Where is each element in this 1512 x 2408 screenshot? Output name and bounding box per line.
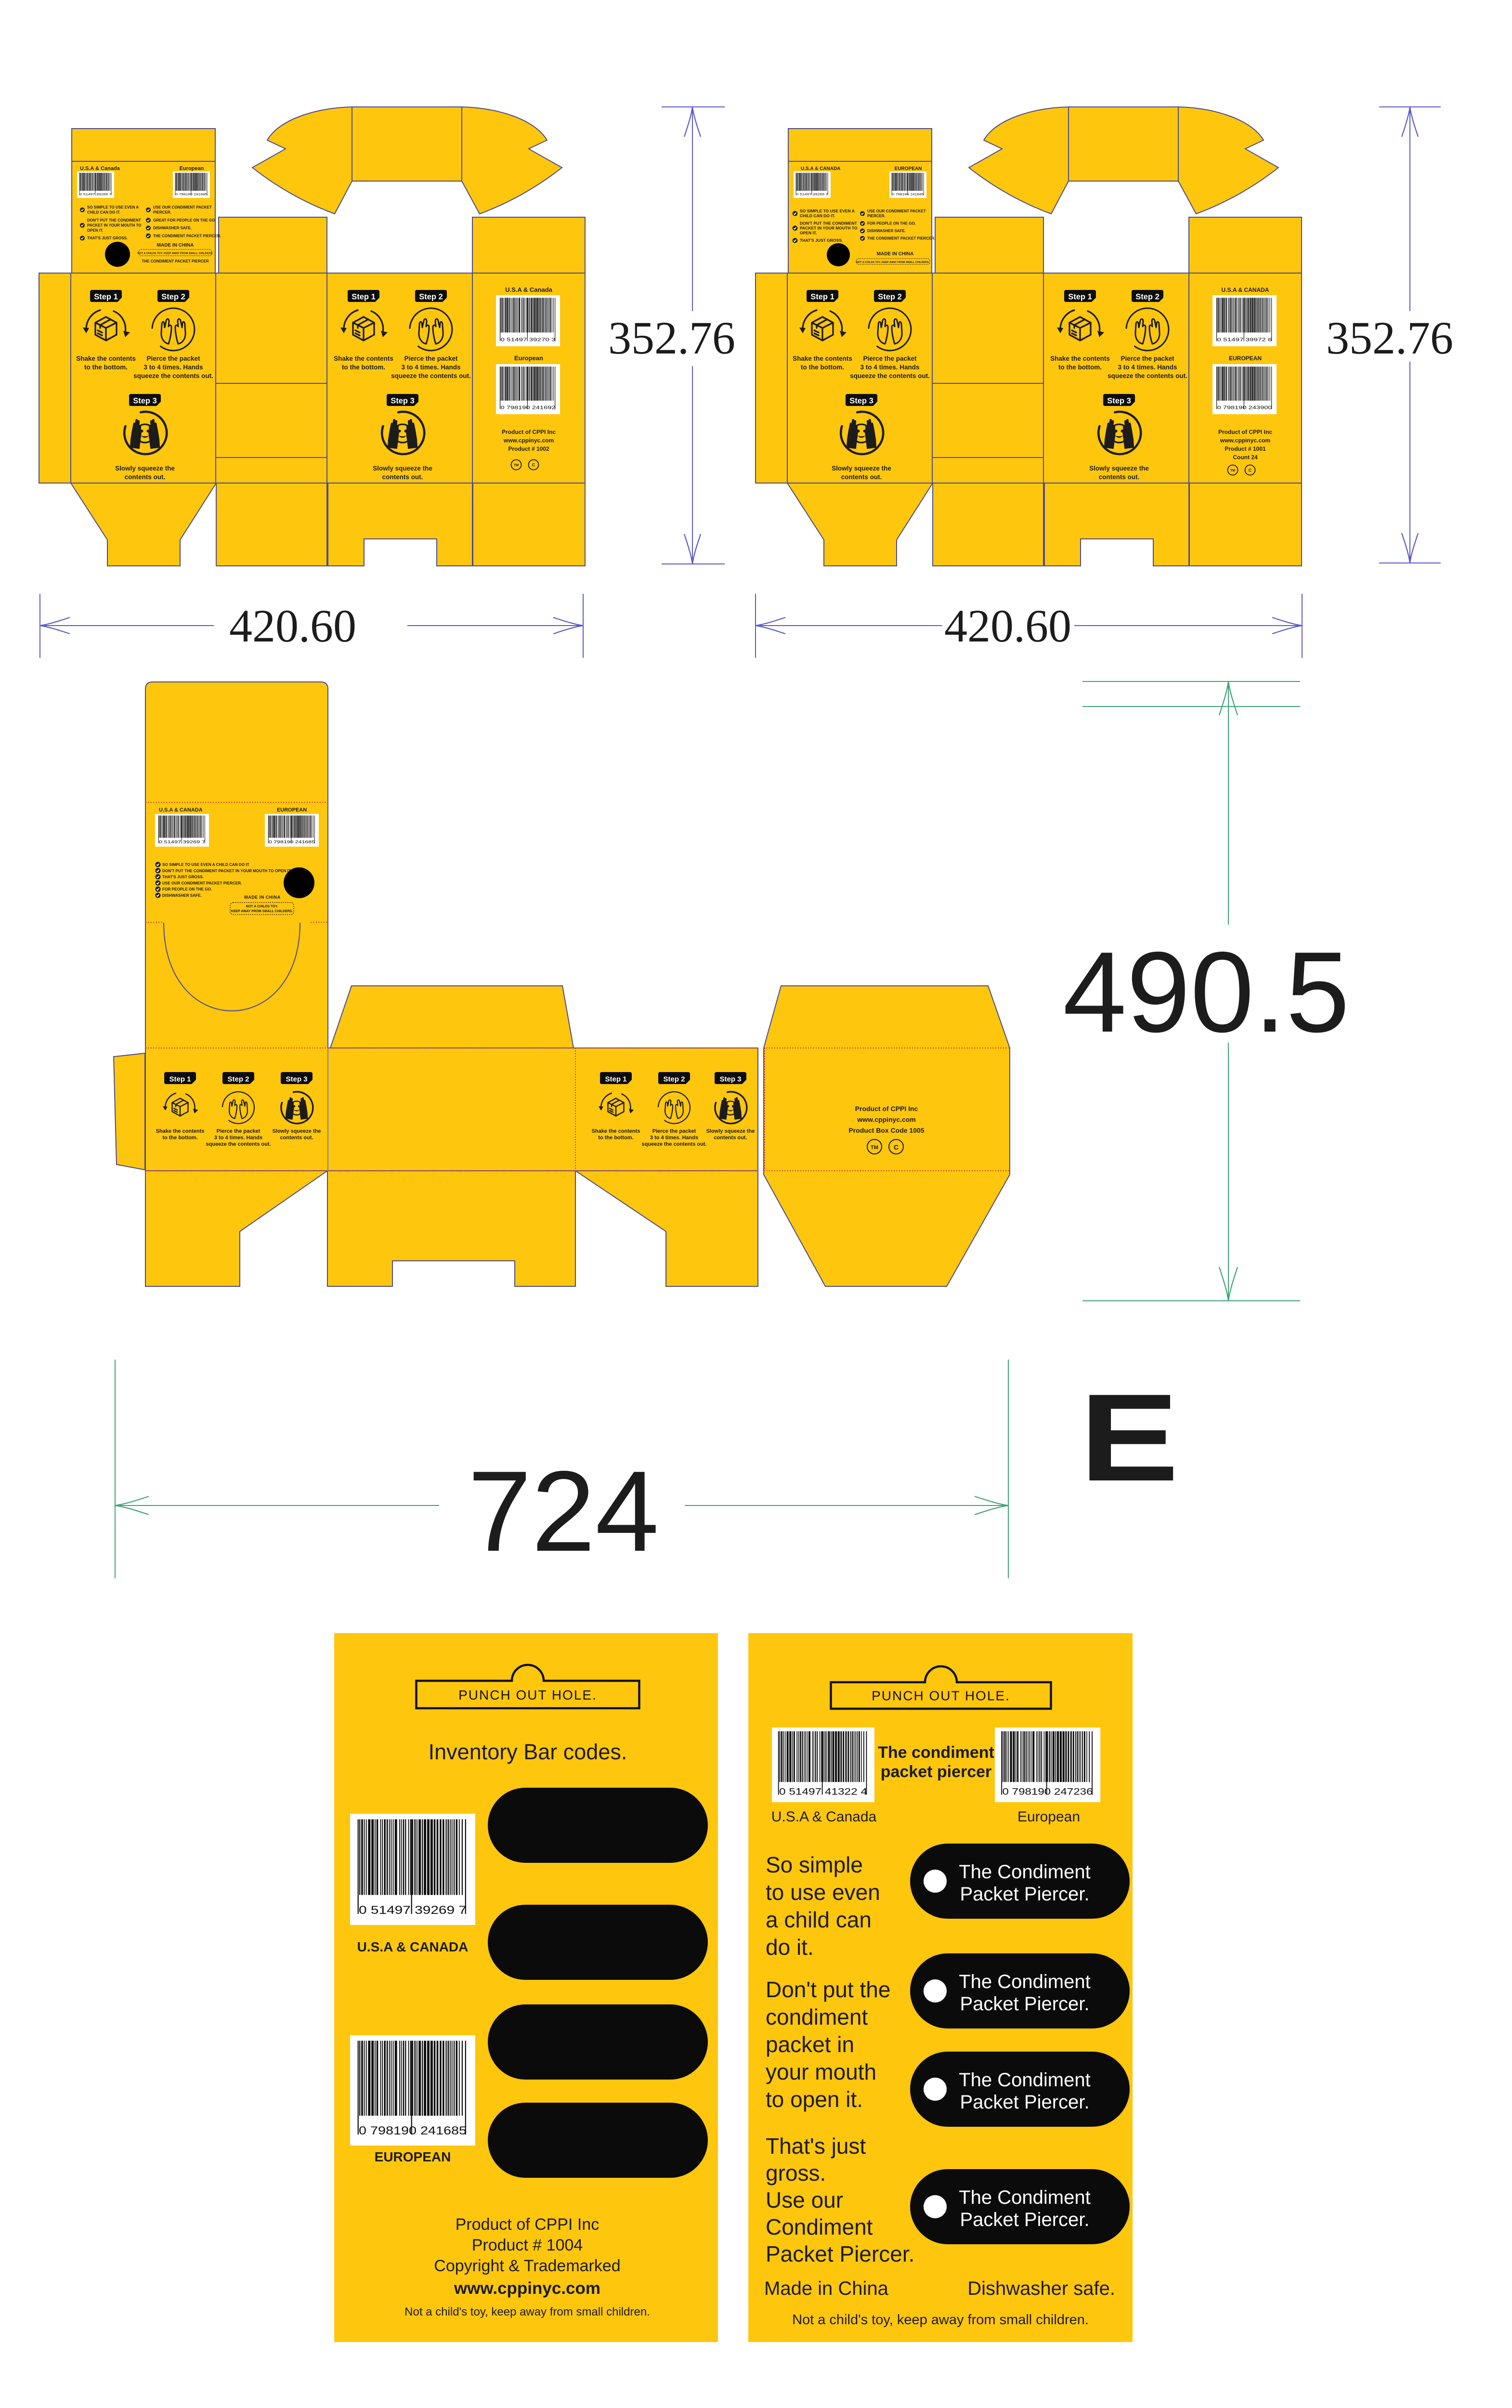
- svg-text:THE CONDIMENT PACKET PIERCER.: THE CONDIMENT PACKET PIERCER.: [867, 236, 935, 241]
- svg-text:Step 1: Step 1: [605, 1075, 626, 1084]
- svg-text:KEEP AWAY FROM SMALL CHILDERS.: KEEP AWAY FROM SMALL CHILDERS.: [231, 910, 293, 913]
- svg-text:contents out.: contents out.: [1099, 473, 1140, 481]
- svg-text:your mouth: your mouth: [766, 2059, 876, 2084]
- svg-text:DISHWASHER SAFE.: DISHWASHER SAFE.: [867, 229, 906, 233]
- svg-text:contents out.: contents out.: [382, 473, 423, 481]
- svg-text:contents out.: contents out.: [714, 1135, 747, 1141]
- svg-text:MADE IN CHINA: MADE IN CHINA: [877, 251, 914, 257]
- svg-text:squeeze the contents out.: squeeze the contents out.: [206, 1141, 271, 1147]
- svg-text:0 798190 243900: 0 798190 243900: [1217, 406, 1273, 411]
- svg-text:USE OUR CONDIMENT PACKET: USE OUR CONDIMENT PACKET: [153, 205, 212, 209]
- svg-text:to the bottom.: to the bottom.: [1058, 364, 1102, 371]
- svg-text:OPEN IT.: OPEN IT.: [87, 228, 103, 233]
- svg-text:Product # 1001: Product # 1001: [1225, 445, 1266, 452]
- svg-text:THE CONDIMENT PACKET PIERCER.: THE CONDIMENT PACKET PIERCER.: [153, 234, 221, 238]
- svg-text:0 798190 241685: 0 798190 241685: [359, 2124, 467, 2137]
- svg-text:squeeze the contents out.: squeeze the contents out.: [1108, 372, 1187, 380]
- svg-text:THAT'S JUST GROSS.: THAT'S JUST GROSS.: [800, 238, 843, 243]
- svg-text:Packet Piercer.: Packet Piercer.: [960, 2209, 1089, 2230]
- svg-text:Step 2: Step 2: [419, 293, 443, 301]
- svg-text:EUROPEAN: EUROPEAN: [277, 807, 307, 813]
- svg-text:DON'T PUT THE CONDIMENT PACKET: DON'T PUT THE CONDIMENT PACKET IN YOUR M…: [162, 869, 291, 873]
- svg-text:MADE IN CHINA: MADE IN CHINA: [157, 243, 194, 248]
- svg-text:Step 1: Step 1: [352, 293, 376, 301]
- svg-text:squeeze the contents out.: squeeze the contents out.: [391, 372, 471, 380]
- svg-text:European: European: [514, 354, 543, 362]
- svg-text:0 51497 39270 3: 0 51497 39270 3: [501, 337, 556, 342]
- svg-text:Not a child's toy, keep away f: Not a child's toy, keep away from small …: [404, 2305, 650, 2318]
- svg-text:Copyright & Trademarked: Copyright & Trademarked: [434, 2257, 620, 2275]
- svg-text:European: European: [1017, 1809, 1080, 1825]
- svg-text:U.S.A & CANADA: U.S.A & CANADA: [357, 1939, 469, 1954]
- svg-text:Product # 1004: Product # 1004: [472, 2236, 583, 2254]
- svg-text:0 798190 247236: 0 798190 247236: [1003, 1787, 1093, 1797]
- svg-text:to open it.: to open it.: [766, 2087, 863, 2112]
- svg-text:NOT A CHILDS TOY. KEEP AWAY FR: NOT A CHILDS TOY. KEEP AWAY FROM SMALL C…: [137, 252, 213, 255]
- svg-text:Packet Piercer.: Packet Piercer.: [960, 1884, 1089, 1905]
- svg-text:Product of CPPI Inc: Product of CPPI Inc: [456, 2215, 600, 2234]
- svg-text:Use our: Use our: [766, 2187, 843, 2212]
- svg-text:to the bottom.: to the bottom.: [342, 364, 385, 371]
- svg-text:DISHWASHER SAFE.: DISHWASHER SAFE.: [162, 893, 202, 898]
- svg-text:NOT A CHILDS TOY. KEEP AWAY FR: NOT A CHILDS TOY. KEEP AWAY FROM SMALL C…: [856, 261, 929, 264]
- svg-text:to the bottom.: to the bottom.: [162, 1135, 197, 1141]
- svg-text:USE OUR CONDIMENT PACKET: USE OUR CONDIMENT PACKET: [867, 209, 926, 213]
- svg-text:0 51497 39972 6: 0 51497 39972 6: [1217, 337, 1273, 342]
- svg-text:Product of CPPI Inc: Product of CPPI Inc: [1218, 429, 1272, 435]
- svg-text:Step 2: Step 2: [878, 293, 902, 301]
- svg-text:OPEN IT.: OPEN IT.: [800, 231, 817, 236]
- svg-text:352.76: 352.76: [1326, 312, 1453, 364]
- svg-text:Shake the contents: Shake the contents: [156, 1128, 205, 1134]
- svg-text:EUROPEAN: EUROPEAN: [1229, 355, 1262, 362]
- svg-text:0 798190 241685: 0 798190 241685: [176, 193, 208, 196]
- svg-text:0 51497 39269 7: 0 51497 39269 7: [796, 193, 829, 196]
- svg-text:Slowly squeeze the: Slowly squeeze the: [115, 465, 175, 472]
- svg-text:TM: TM: [514, 464, 519, 467]
- svg-text:0 51497 39269 7: 0 51497 39269 7: [359, 1904, 467, 1917]
- svg-text:Step 3: Step 3: [719, 1075, 741, 1084]
- svg-text:www.cppinyc.com: www.cppinyc.com: [857, 1116, 916, 1124]
- svg-text:Product Box Code 1005: Product Box Code 1005: [848, 1126, 924, 1134]
- svg-text:3 to 4 times. Hands: 3 to 4 times. Hands: [214, 1135, 262, 1141]
- svg-text:Pierce the packet: Pierce the packet: [863, 355, 917, 362]
- svg-text:Condiment: Condiment: [766, 2214, 873, 2239]
- svg-text:Pierce the packet: Pierce the packet: [1121, 355, 1174, 362]
- svg-text:C: C: [1249, 468, 1252, 473]
- svg-text:www.cppinyc.com: www.cppinyc.com: [503, 437, 554, 444]
- svg-text:DISHWASHER SAFE.: DISHWASHER SAFE.: [153, 226, 192, 230]
- svg-text:The Condiment: The Condiment: [959, 2187, 1090, 2208]
- svg-text:U.S.A & Canada: U.S.A & Canada: [505, 286, 553, 293]
- svg-text:352.76: 352.76: [608, 312, 735, 364]
- svg-text:724: 724: [468, 1448, 659, 1575]
- svg-text:C: C: [532, 463, 535, 468]
- svg-text:DON'T PUT THE CONDIMENT: DON'T PUT THE CONDIMENT: [800, 221, 857, 226]
- svg-text:CHILD CAN DO IT.: CHILD CAN DO IT.: [87, 210, 120, 215]
- svg-text:420.60: 420.60: [944, 600, 1071, 652]
- svg-text:EUROPEAN: EUROPEAN: [375, 2149, 451, 2164]
- svg-text:Product of CPPI Inc: Product of CPPI Inc: [502, 429, 556, 435]
- svg-text:3 to 4 times. Hands: 3 to 4 times. Hands: [143, 364, 203, 371]
- svg-text:PACKET IN YOUR MOUTH TO: PACKET IN YOUR MOUTH TO: [800, 226, 858, 231]
- svg-text:Step 3: Step 3: [1107, 397, 1131, 406]
- svg-text:Product # 1002: Product # 1002: [508, 445, 549, 452]
- svg-text:NOT A CHILDS TOY.: NOT A CHILDS TOY.: [246, 905, 278, 908]
- svg-text:www.cppinyc.com: www.cppinyc.com: [1220, 437, 1270, 444]
- svg-text:USE OUR CONDIMENT PACKET PIERC: USE OUR CONDIMENT PACKET PIERCER.: [162, 881, 242, 885]
- svg-text:0 51497 39269 7: 0 51497 39269 7: [80, 193, 112, 196]
- svg-text:Step 1: Step 1: [1068, 293, 1092, 301]
- svg-text:Packet Piercer.: Packet Piercer.: [960, 1993, 1089, 2015]
- svg-text:contents out.: contents out.: [125, 473, 166, 481]
- svg-text:packet piercer: packet piercer: [881, 1763, 992, 1781]
- svg-text:Slowly squeeze the: Slowly squeeze the: [706, 1128, 755, 1134]
- svg-text:490.5: 490.5: [1063, 929, 1350, 1056]
- svg-text:Slowly squeeze the: Slowly squeeze the: [1089, 465, 1149, 472]
- svg-text:squeeze the contents out.: squeeze the contents out.: [850, 372, 930, 380]
- svg-text:3 to 4 times. Hands: 3 to 4 times. Hands: [401, 364, 460, 371]
- svg-text:Not a child's toy, keep away f: Not a child's toy, keep away from small …: [792, 2312, 1089, 2328]
- svg-text:E: E: [1080, 1368, 1179, 1507]
- svg-text:to the bottom.: to the bottom.: [801, 364, 844, 371]
- svg-text:FOR PEOPLE ON THE GO.: FOR PEOPLE ON THE GO.: [867, 222, 916, 226]
- svg-text:THE CONDIMENT PACKET PIERCER: THE CONDIMENT PACKET PIERCER: [142, 259, 209, 263]
- svg-text:Step 3: Step 3: [391, 397, 415, 406]
- svg-text:squeeze the contents out.: squeeze the contents out.: [133, 372, 213, 380]
- svg-text:PUNCH OUT HOLE.: PUNCH OUT HOLE.: [872, 1688, 1010, 1703]
- svg-text:European: European: [180, 166, 204, 171]
- svg-text:Slowly squeeze the: Slowly squeeze the: [373, 465, 432, 472]
- svg-text:U.S.A & CANADA: U.S.A & CANADA: [159, 807, 203, 813]
- svg-text:Step 2: Step 2: [663, 1075, 685, 1084]
- svg-text:to the bottom.: to the bottom.: [84, 364, 128, 371]
- svg-text:Step 1: Step 1: [169, 1075, 191, 1084]
- svg-text:contents out.: contents out.: [280, 1135, 313, 1141]
- svg-text:THAT'S JUST GROSS.: THAT'S JUST GROSS.: [87, 236, 128, 240]
- svg-text:SO SIMPLE TO USE EVEN A: SO SIMPLE TO USE EVEN A: [800, 209, 855, 213]
- svg-text:packet in: packet in: [766, 2032, 854, 2057]
- svg-text:U.S.A & CANADA: U.S.A & CANADA: [1222, 287, 1269, 293]
- svg-text:Step 3: Step 3: [849, 397, 873, 406]
- svg-text:do it.: do it.: [766, 1935, 814, 1960]
- svg-text:Don't put the: Don't put the: [766, 1977, 890, 2002]
- svg-text:C: C: [894, 1143, 899, 1151]
- svg-text:0 798190 241685: 0 798190 241685: [269, 839, 315, 844]
- svg-text:The Condiment: The Condiment: [959, 2069, 1090, 2091]
- svg-text:FOR PEOPLE ON THE GO.: FOR PEOPLE ON THE GO.: [162, 887, 212, 891]
- svg-text:Shake the contents: Shake the contents: [334, 355, 393, 362]
- svg-text:The condiment: The condiment: [878, 1743, 994, 1762]
- svg-text:0 51497 39269 7: 0 51497 39269 7: [159, 839, 205, 844]
- svg-text:PIERCER.: PIERCER.: [153, 210, 171, 215]
- svg-text:Packet Piercer.: Packet Piercer.: [766, 2241, 914, 2266]
- svg-text:PUNCH OUT HOLE.: PUNCH OUT HOLE.: [458, 1688, 597, 1702]
- svg-text:Step 1: Step 1: [810, 293, 834, 301]
- svg-text:The Condiment: The Condiment: [959, 1971, 1090, 1992]
- svg-text:3 to 4 times. Hands: 3 to 4 times. Hands: [650, 1135, 698, 1141]
- svg-text:SO SIMPLE TO USE EVEN A: SO SIMPLE TO USE EVEN A: [87, 205, 139, 209]
- svg-text:Step 3: Step 3: [133, 397, 157, 406]
- svg-text:PACKET IN YOUR MOUTH TO: PACKET IN YOUR MOUTH TO: [87, 223, 141, 227]
- svg-text:gross.: gross.: [766, 2160, 826, 2186]
- svg-text:3 to 4 times. Hands: 3 to 4 times. Hands: [860, 364, 919, 371]
- svg-text:a child can: a child can: [766, 1907, 872, 1932]
- svg-text:0 51497 41322 4: 0 51497 41322 4: [779, 1787, 868, 1797]
- svg-text:Inventory Bar codes.: Inventory Bar codes.: [429, 1740, 627, 1764]
- svg-text:U.S.A & Canada: U.S.A & Canada: [80, 166, 120, 171]
- svg-text:TM: TM: [1230, 469, 1235, 472]
- svg-text:Made in China: Made in China: [764, 2278, 889, 2299]
- svg-text:DON'T PUT THE CONDIMENT: DON'T PUT THE CONDIMENT: [87, 218, 141, 222]
- svg-text:contents out.: contents out.: [841, 473, 882, 481]
- svg-text:Shake the contents: Shake the contents: [793, 355, 852, 362]
- svg-text:Step 2: Step 2: [161, 293, 185, 301]
- svg-text:Pierce the packet: Pierce the packet: [146, 355, 200, 362]
- svg-text:MADE IN CHINA: MADE IN CHINA: [244, 895, 281, 900]
- svg-text:Step 1: Step 1: [94, 293, 118, 301]
- svg-text:0 798190 241685: 0 798190 241685: [892, 193, 924, 196]
- svg-text:So simple: So simple: [766, 1852, 863, 1877]
- svg-text:CHILD CAN DO IT.: CHILD CAN DO IT.: [800, 213, 835, 218]
- svg-text:Shake the contents: Shake the contents: [1050, 355, 1110, 362]
- svg-text:EUROPEAN: EUROPEAN: [895, 166, 922, 171]
- svg-text:to the bottom.: to the bottom.: [598, 1135, 633, 1141]
- svg-text:Step 2: Step 2: [227, 1075, 249, 1084]
- svg-text:420.60: 420.60: [229, 600, 356, 652]
- svg-text:PIERCER.: PIERCER.: [867, 214, 886, 218]
- svg-text:3 to 4 times. Hands: 3 to 4 times. Hands: [1118, 364, 1177, 371]
- svg-text:SO SIMPLE TO USE EVEN A CHILD: SO SIMPLE TO USE EVEN A CHILD CAN DO IT: [162, 863, 249, 867]
- svg-text:Count 24: Count 24: [1233, 454, 1258, 461]
- svg-text:condiment: condiment: [766, 2004, 868, 2029]
- svg-text:squeeze the contents out.: squeeze the contents out.: [641, 1141, 706, 1147]
- svg-text:www.cppinyc.com: www.cppinyc.com: [454, 2279, 600, 2298]
- svg-text:That's just: That's just: [766, 2133, 866, 2159]
- svg-text:Product of CPPI Inc: Product of CPPI Inc: [855, 1105, 918, 1112]
- svg-text:THAT'S JUST GROSS.: THAT'S JUST GROSS.: [162, 875, 204, 879]
- svg-text:Pierce the packet: Pierce the packet: [404, 355, 458, 362]
- svg-text:Shake the contents: Shake the contents: [76, 355, 136, 362]
- svg-text:The Condiment: The Condiment: [959, 1861, 1090, 1883]
- svg-text:Pierce the packet: Pierce the packet: [652, 1128, 696, 1134]
- svg-text:Packet Piercer.: Packet Piercer.: [960, 2092, 1089, 2113]
- svg-text:U.S.A & Canada: U.S.A & Canada: [771, 1809, 877, 1825]
- svg-text:Pierce the packet: Pierce the packet: [217, 1128, 261, 1134]
- svg-text:TM: TM: [871, 1145, 878, 1151]
- svg-text:Step 2: Step 2: [1135, 293, 1160, 301]
- svg-text:Slowly squeeze the: Slowly squeeze the: [273, 1128, 321, 1134]
- svg-text:0 798190 241692: 0 798190 241692: [501, 406, 556, 411]
- svg-text:Dishwasher safe.: Dishwasher safe.: [967, 2278, 1115, 2299]
- svg-text:to use even: to use even: [766, 1880, 880, 1905]
- svg-text:Step 3: Step 3: [286, 1075, 307, 1084]
- svg-text:U.S.A & CANADA: U.S.A & CANADA: [801, 166, 840, 171]
- svg-text:GREAT FOR PEOPLE ON THE GO.: GREAT FOR PEOPLE ON THE GO.: [153, 218, 216, 222]
- svg-text:Slowly squeeze the: Slowly squeeze the: [832, 465, 891, 472]
- svg-text:Shake the contents: Shake the contents: [592, 1128, 640, 1134]
